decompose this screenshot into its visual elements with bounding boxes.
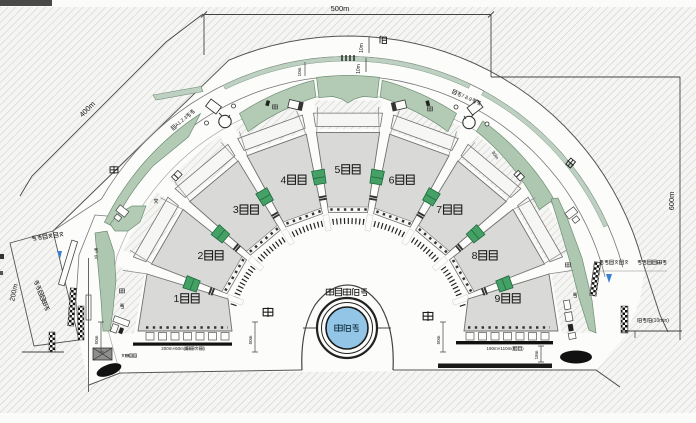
svg-text:7: 7 bbox=[436, 204, 442, 216]
svg-text:8: 8 bbox=[472, 250, 478, 262]
svg-text:4: 4 bbox=[280, 174, 286, 186]
svg-text:9: 9 bbox=[495, 293, 501, 305]
svg-text:3: 3 bbox=[233, 204, 239, 216]
svg-text:50m: 50m bbox=[94, 335, 99, 344]
svg-text:18m: 18m bbox=[534, 350, 539, 359]
svg-text:(10min): (10min) bbox=[652, 318, 669, 324]
svg-text:50m: 50m bbox=[436, 335, 441, 344]
svg-text:1: 1 bbox=[174, 293, 180, 305]
svg-text:10m: 10m bbox=[356, 64, 362, 74]
svg-text:500m: 500m bbox=[331, 4, 350, 13]
svg-text:600m: 600m bbox=[667, 192, 676, 211]
svg-text:190m×110m(9: 190m×110m(9 bbox=[487, 346, 516, 351]
svg-text:6: 6 bbox=[389, 174, 395, 186]
svg-text:2: 2 bbox=[198, 250, 204, 262]
svg-text:10m: 10m bbox=[297, 67, 302, 76]
svg-text:200m×60m(1: 200m×60m(1 bbox=[161, 346, 188, 351]
svg-text:10m: 10m bbox=[359, 43, 365, 53]
svg-text:50m: 50m bbox=[248, 335, 253, 344]
svg-text:5: 5 bbox=[335, 164, 341, 176]
